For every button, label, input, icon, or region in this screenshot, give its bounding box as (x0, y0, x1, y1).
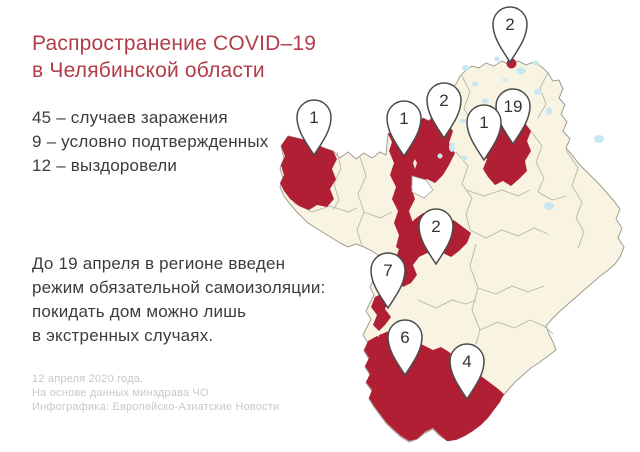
page-title: Распространение COVID–19 в Челябинской о… (32, 30, 316, 84)
title-line: в Челябинской области (32, 57, 316, 84)
pin-case-count: 7 (383, 261, 392, 280)
stat-line-infected: 45 – случаев заражения (32, 106, 269, 130)
title-line: Распространение COVID–19 (32, 30, 316, 57)
restriction-line: режим обязательной самоизоляции: (32, 276, 325, 300)
pin-case-count: 6 (400, 328, 409, 347)
pin-case-count: 4 (462, 352, 471, 371)
restriction-line: в экстренных случаях. (32, 324, 325, 348)
pin-case-count: 1 (309, 108, 318, 127)
pin-case-count: 19 (504, 97, 523, 116)
pin-case-count: 2 (431, 217, 440, 236)
restriction-line: До 19 апреля в регионе введен (32, 252, 325, 276)
footer-source: На основе данных минздрава ЧО (32, 386, 279, 400)
infographic: 21912112764 Распространение COVID–19 в Ч… (0, 0, 640, 452)
stat-line-recovered: 12 – выздоровели (32, 154, 269, 178)
restriction-note: До 19 апреля в регионе введен режим обяз… (32, 252, 325, 348)
pin-case-count: 2 (505, 15, 514, 34)
case-statistics: 45 – случаев заражения 9 – условно подтв… (32, 106, 269, 178)
pin-case-count: 1 (479, 113, 488, 132)
footer-date: 12 апреля 2020 года. (32, 372, 279, 386)
stat-line-suspected: 9 – условно подтвержденных (32, 130, 269, 154)
pin-case-count: 1 (399, 109, 408, 128)
footer-credit: Инфографика: Европейско-Азиатские Новост… (32, 400, 279, 414)
pin-case-count: 2 (439, 91, 448, 110)
source-footer: 12 апреля 2020 года. На основе данных ми… (32, 372, 279, 414)
restriction-line: покидать дом можно лишь (32, 300, 325, 324)
